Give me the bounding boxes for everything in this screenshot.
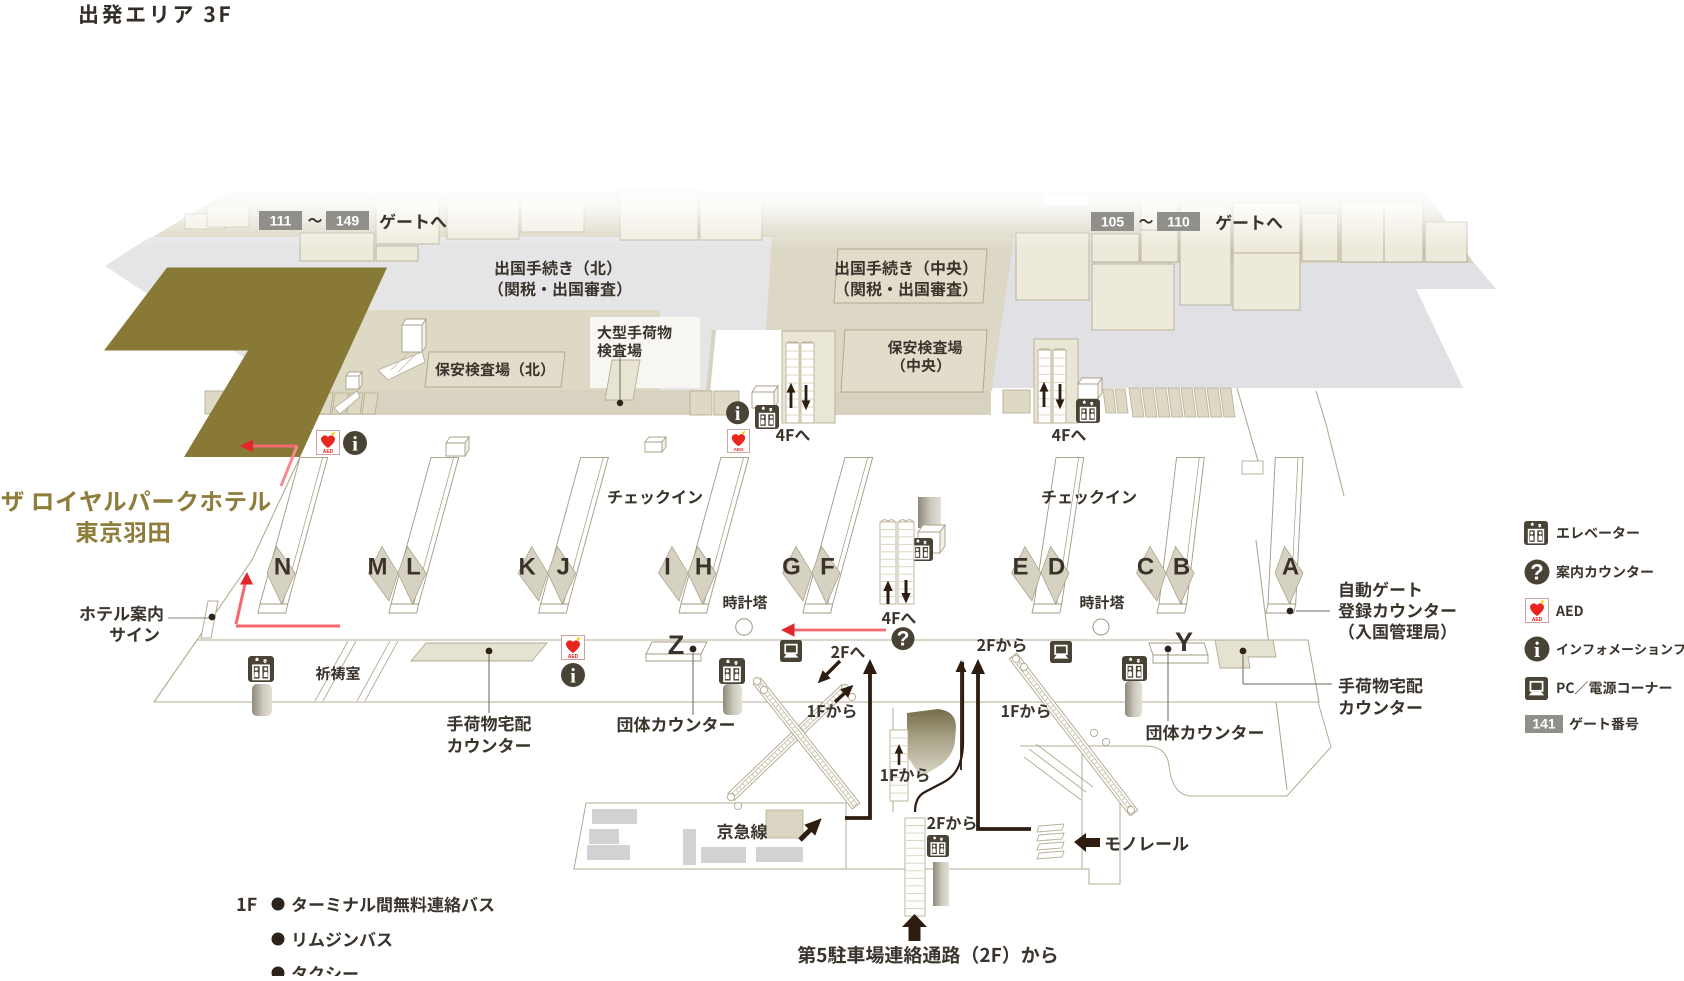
svg-text:AED: AED xyxy=(733,447,744,453)
svg-text:M: M xyxy=(368,554,388,581)
svg-text:J: J xyxy=(557,554,570,581)
svg-text:L: L xyxy=(406,554,421,581)
svg-text:D: D xyxy=(1048,554,1065,581)
svg-text:AED: AED xyxy=(323,449,334,455)
svg-text:141: 141 xyxy=(1532,716,1556,732)
svg-text:i: i xyxy=(1534,637,1540,662)
svg-text:105: 105 xyxy=(1101,214,1125,230)
svg-text:N: N xyxy=(274,554,291,581)
svg-text:G: G xyxy=(782,554,801,581)
svg-text:H: H xyxy=(695,554,712,581)
svg-text:?: ? xyxy=(897,627,910,650)
svg-text:149: 149 xyxy=(336,213,360,229)
svg-text:B: B xyxy=(1173,554,1190,581)
svg-text:?: ? xyxy=(1530,559,1543,584)
svg-text:Z: Z xyxy=(668,630,685,660)
svg-text:C: C xyxy=(1137,554,1154,581)
svg-text:Y: Y xyxy=(1175,627,1193,657)
svg-text:F: F xyxy=(820,554,835,581)
svg-text:i: i xyxy=(570,663,576,687)
svg-text:E: E xyxy=(1012,554,1028,581)
svg-text:110: 110 xyxy=(1167,214,1190,230)
svg-text:AED: AED xyxy=(1532,617,1543,623)
svg-text:I: I xyxy=(664,554,671,581)
svg-text:A: A xyxy=(1282,554,1299,581)
svg-text:AED: AED xyxy=(568,654,579,660)
svg-text:K: K xyxy=(519,554,537,581)
svg-text:i: i xyxy=(735,403,741,425)
svg-text:111: 111 xyxy=(270,213,292,229)
svg-text:i: i xyxy=(352,431,358,455)
